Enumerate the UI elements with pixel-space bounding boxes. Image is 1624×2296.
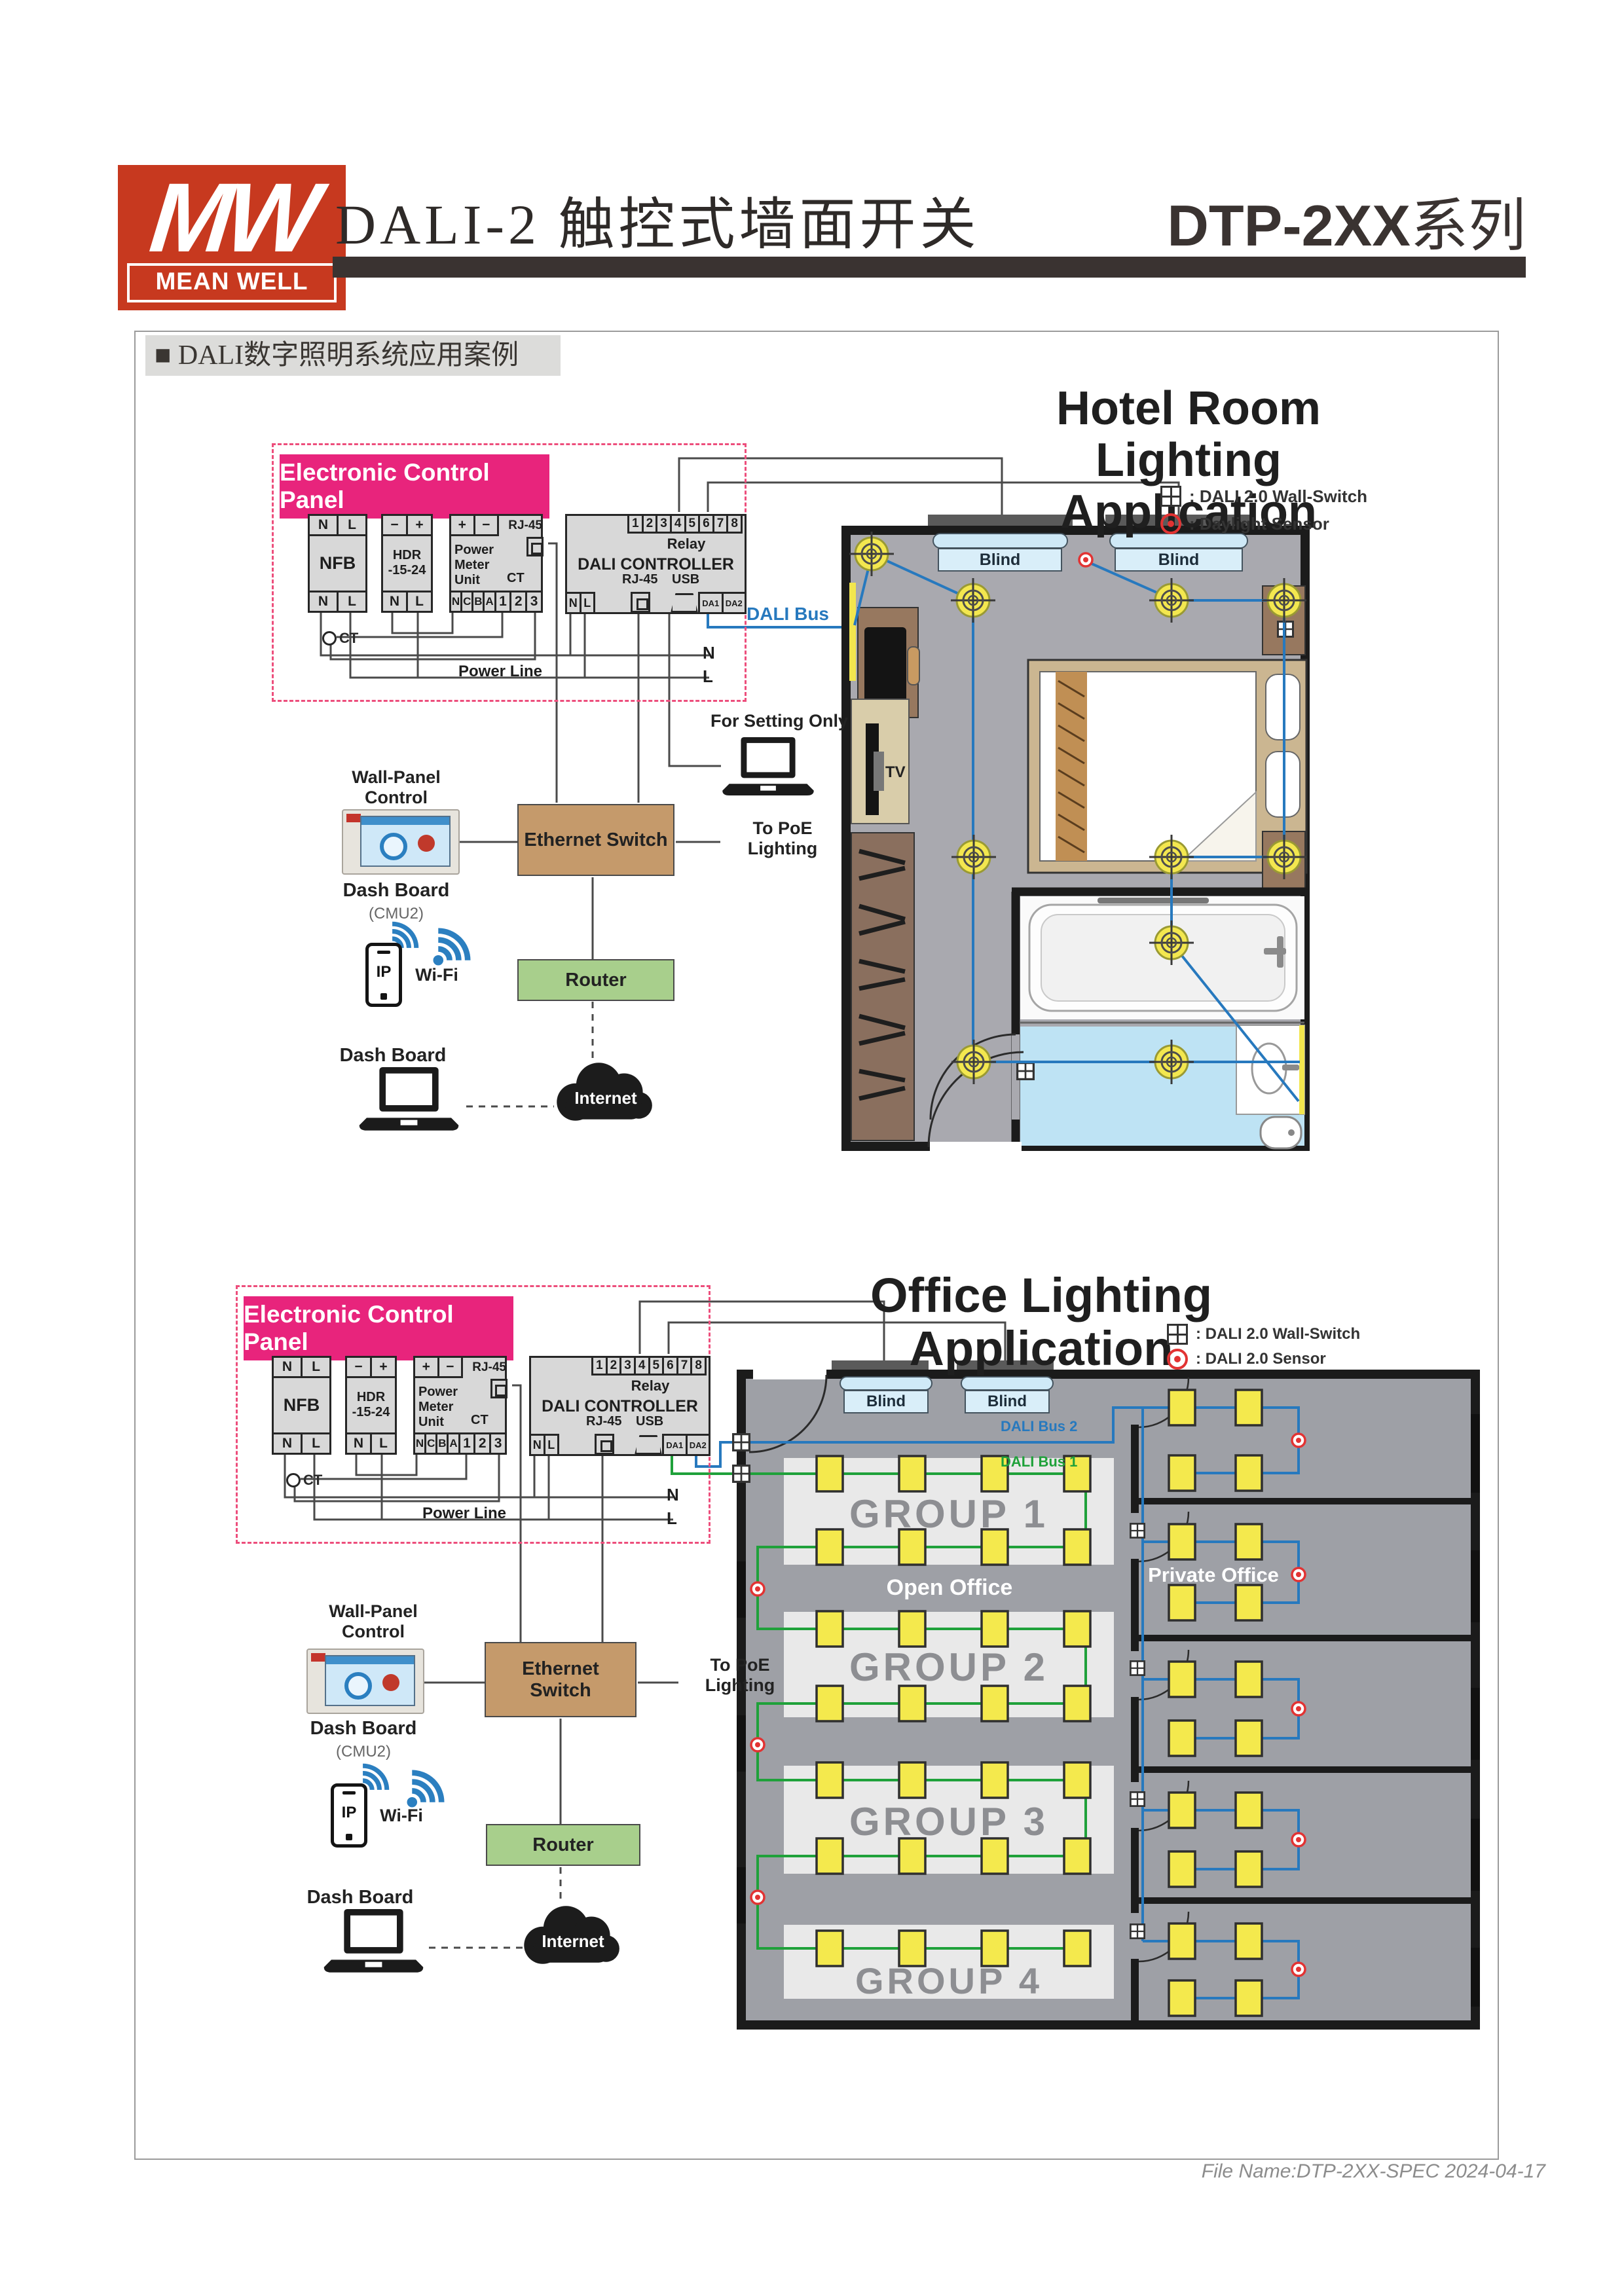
rj45-port-icon xyxy=(526,537,544,556)
daylight-sensor-icon xyxy=(1160,513,1181,534)
legend-dali-sensor: : DALI 2.0 Sensor xyxy=(1167,1349,1326,1370)
nfb-label: NFB xyxy=(272,1385,331,1425)
neutral-label: N xyxy=(667,1485,679,1505)
open-office-label: Open Office xyxy=(851,1575,1048,1601)
pmu-rj45-label: RJ-45 xyxy=(490,519,542,533)
nfb-bottom-terminals: NL xyxy=(272,1432,331,1455)
tablet-screen xyxy=(325,1655,415,1706)
dashboard2-label: Dash Board xyxy=(295,1887,426,1908)
wall-panel-tablet xyxy=(342,809,460,875)
legend-wall-switch: : DALI 2.0 Wall-Switch xyxy=(1160,486,1367,507)
nfb-label: NFB xyxy=(308,543,367,583)
relay-label: Relay xyxy=(604,1377,696,1394)
blind-label: Blind xyxy=(843,1390,929,1413)
internet-label: Internet xyxy=(563,1088,648,1108)
dali-usb-label: USB xyxy=(672,572,699,587)
relay-terminals: 12345678 xyxy=(591,1356,707,1376)
group2-label: GROUP 2 xyxy=(784,1645,1114,1690)
office-electronic-control-panel: Electronic Control Panel NL NL NFB −+ NL… xyxy=(236,1285,710,1544)
pmu-bottom-terminals: NCBA123 xyxy=(413,1432,507,1455)
rj45-port-icon xyxy=(631,592,650,613)
hdr-top-terminals: −+ xyxy=(345,1356,397,1378)
nfb-top-terminals: NL xyxy=(308,514,367,536)
power-line-label: Power Line xyxy=(422,1504,506,1523)
pmu-ct-label: CT xyxy=(471,1413,489,1428)
dali-bus2-label: DALI Bus 2 xyxy=(1001,1418,1077,1435)
legend-wall-switch: : DALI 2.0 Wall-Switch xyxy=(1167,1324,1360,1345)
smartphone-icon: IP xyxy=(365,943,402,1007)
wall-panel-label: Wall-Panel Control xyxy=(318,1601,429,1642)
dali-bus1-label: DALI Bus 1 xyxy=(1001,1453,1077,1470)
blind-label: Blind xyxy=(938,548,1062,572)
internet-label: Internet xyxy=(530,1931,616,1952)
group1-label: GROUP 1 xyxy=(784,1491,1114,1537)
page-title: DALI-2 触控式墙面开关 xyxy=(335,178,980,260)
wall-switch-icon xyxy=(1167,1324,1188,1345)
for-setting-label: For Setting Only xyxy=(694,711,864,731)
hotel-electronic-control-panel: Electronic Control Panel NL NL NFB −+ NL… xyxy=(272,443,747,702)
cmu2-label: (CMU2) xyxy=(331,905,462,923)
logo-mw-glyph: MW xyxy=(112,161,352,274)
smartphone-icon: IP xyxy=(331,1783,367,1848)
to-poe-label: To PoE Lighting xyxy=(681,1655,799,1696)
relay-label: Relay xyxy=(640,536,732,553)
panel-title: Electronic Control Panel xyxy=(280,454,549,519)
legend-daylight-sensor: : Daylight Sensor xyxy=(1160,513,1329,534)
router: Router xyxy=(517,959,674,1001)
wall-switch-icon xyxy=(1160,486,1181,507)
dashboard-label: Dash Board xyxy=(331,880,462,902)
line-label: L xyxy=(667,1508,677,1529)
wall-panel-tablet xyxy=(306,1649,424,1714)
pmu-bottom-terminals: NCBA123 xyxy=(449,591,543,613)
dali-rj45-label: RJ-45 xyxy=(622,572,657,587)
da-terminals: DA1DA2 xyxy=(698,592,747,614)
header-rule xyxy=(333,257,1526,278)
wifi-label: Wi-Fi xyxy=(407,965,466,985)
ct-tap: CT xyxy=(322,630,358,647)
nfb-bottom-terminals: NL xyxy=(308,591,367,613)
logo-brand: MEAN WELL xyxy=(127,263,337,302)
power-line-label: Power Line xyxy=(458,663,542,681)
dali-sensor-icon xyxy=(1167,1349,1188,1370)
pmu-rj45-label: RJ-45 xyxy=(454,1360,506,1375)
meanwell-logo: MW MEAN WELL xyxy=(118,165,346,310)
tablet-screen xyxy=(360,816,451,867)
dashboard-label: Dash Board xyxy=(298,1718,429,1740)
spec-page: MW MEAN WELL DALI-2 触控式墙面开关 DTP-2XX系列 ■ … xyxy=(0,0,1624,2296)
wifi-label: Wi-Fi xyxy=(372,1806,431,1826)
ethernet-switch: Ethernet Switch xyxy=(517,804,674,876)
router: Router xyxy=(486,1824,640,1866)
rj45-port-icon xyxy=(490,1379,507,1398)
section-heading: ■ DALI数字照明系统应用案例 xyxy=(145,335,561,376)
group3-label: GROUP 3 xyxy=(784,1799,1114,1844)
line-label: L xyxy=(703,666,713,687)
dali-usb-label: USB xyxy=(636,1414,663,1429)
blind-label: Blind xyxy=(1115,548,1243,572)
panel-title: Electronic Control Panel xyxy=(244,1296,513,1360)
neutral-label: N xyxy=(703,643,715,663)
dali-nl-terminals: NL xyxy=(529,1434,559,1456)
cmu2-label: (CMU2) xyxy=(298,1743,429,1761)
tv-label: TV xyxy=(885,763,906,782)
hdr-label: HDR-15-24 xyxy=(345,1384,397,1426)
mw-chip xyxy=(311,1653,325,1662)
ethernet-switch: Ethernet Switch xyxy=(485,1642,637,1717)
ct-tap: CT xyxy=(286,1472,322,1489)
relay-terminals: 12345678 xyxy=(627,514,743,534)
hdr-top-terminals: −+ xyxy=(381,514,433,536)
pmu-label: Power Meter Unit xyxy=(454,541,515,589)
dali-rj45-label: RJ-45 xyxy=(586,1414,621,1429)
dali-nl-terminals: NL xyxy=(565,592,595,614)
series-title: DTP-2XX系列 xyxy=(1167,179,1526,263)
hdr-bottom-terminals: NL xyxy=(381,591,433,613)
rj45-port-icon xyxy=(595,1434,614,1455)
hdr-label: HDR-15-24 xyxy=(381,542,433,584)
dali-bus-label: DALI Bus xyxy=(747,604,829,625)
da-terminals: DA1DA2 xyxy=(662,1434,710,1456)
blind-label: Blind xyxy=(965,1390,1050,1413)
hdr-bottom-terminals: NL xyxy=(345,1432,397,1455)
mw-chip xyxy=(346,814,361,822)
pmu-ct-label: CT xyxy=(507,571,525,586)
pmu-label: Power Meter Unit xyxy=(418,1383,479,1431)
group4-label: GROUP 4 xyxy=(784,1959,1114,2002)
nfb-top-terminals: NL xyxy=(272,1356,331,1378)
to-poe-label: To PoE Lighting xyxy=(724,818,841,859)
wall-panel-label: Wall-Panel Control xyxy=(341,767,452,808)
file-name-footer: File Name:DTP-2XX-SPEC 2024-04-17 xyxy=(950,2160,1545,2183)
private-office-label: Private Office xyxy=(1138,1563,1289,1587)
dashboard2-label: Dash Board xyxy=(327,1045,458,1066)
